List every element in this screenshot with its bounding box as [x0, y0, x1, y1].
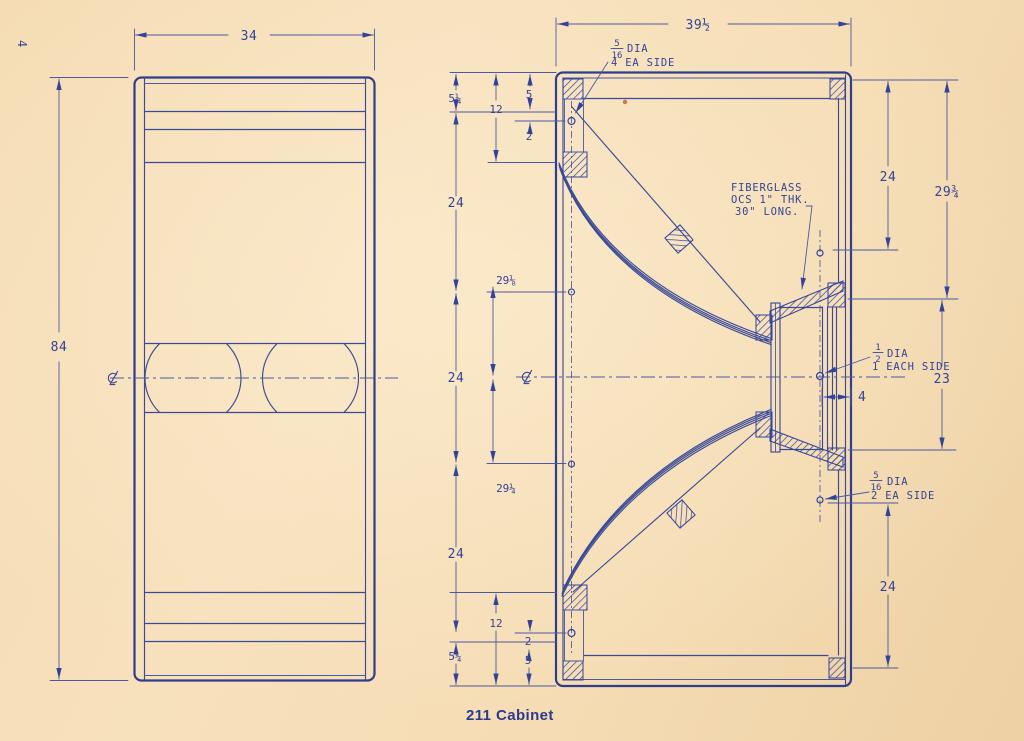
- dim-left-upper-29: 29⅛: [493, 274, 516, 375]
- svg-text:24: 24: [448, 547, 465, 562]
- note-rear-holes-low: 5 16 DIA 2 EA SIDE: [826, 471, 936, 502]
- svg-text:24: 24: [448, 371, 465, 386]
- dim-right-upper-29: 29¾: [935, 82, 960, 298]
- wood-blocks: [563, 79, 845, 680]
- left-extension-lines: [450, 73, 566, 687]
- svg-text:1 EACH SIDE: 1 EACH SIDE: [872, 361, 950, 373]
- svg-text:5¼: 5¼: [448, 92, 461, 105]
- note-rear-hole-mid: 1 2 DIA 1 EACH SIDE: [826, 343, 951, 373]
- front-width-label: 34: [241, 29, 258, 44]
- svg-text:2 EA SIDE: 2 EA SIDE: [871, 490, 935, 502]
- dim-left-two-top: 2: [526, 123, 533, 143]
- svg-text:24: 24: [880, 170, 897, 185]
- section-view: [516, 73, 908, 687]
- section-shell-lines: [563, 75, 846, 684]
- section-width-label: 39½: [686, 18, 711, 33]
- frac-numerator: 1: [875, 343, 880, 353]
- svg-text:2: 2: [526, 130, 533, 143]
- svg-text:2: 2: [525, 635, 532, 648]
- dim-left-upper-24: 24: [448, 114, 465, 291]
- svg-text:DIA: DIA: [627, 43, 648, 55]
- svg-text:OCS 1" THK.: OCS 1" THK.: [731, 194, 809, 206]
- svg-text:5: 5: [525, 654, 532, 667]
- svg-text:24: 24: [448, 196, 465, 211]
- horn-curve-bottom: [562, 409, 771, 596]
- blueprint-page: 34 84: [0, 0, 1024, 741]
- dim-left-two-bottom: 2: [525, 622, 532, 648]
- svg-text:29⅛: 29⅛: [496, 274, 516, 287]
- dim-left-twelve-top: 12: [489, 75, 502, 162]
- dim-front-height: 84: [50, 78, 128, 681]
- dim-left-center-24: 24: [448, 294, 465, 463]
- svg-text:5¼: 5¼: [448, 650, 461, 663]
- front-height-label: 84: [51, 340, 68, 355]
- front-panel-lines: [145, 78, 366, 680]
- dim-left-five-bottom: 5: [525, 650, 532, 685]
- svg-text:FIBERGLASS: FIBERGLASS: [731, 182, 802, 194]
- frac-numerator: 5: [614, 39, 619, 49]
- svg-text:30" LONG.: 30" LONG.: [735, 206, 799, 218]
- dim-left-five-top: 5: [526, 75, 533, 110]
- svg-text:29¼: 29¼: [496, 482, 516, 495]
- tie-rod-top: [572, 107, 760, 322]
- tie-rod-bottom: [573, 428, 760, 592]
- paper-speck: [623, 100, 627, 104]
- dim-right-upper-24: 24: [880, 82, 897, 249]
- horn-mouth-circles: [145, 330, 359, 426]
- svg-text:23: 23: [934, 372, 951, 387]
- note-fiberglass: FIBERGLASS OCS 1" THK. 30" LONG.: [731, 182, 812, 289]
- dim-front-width: 34: [135, 29, 375, 70]
- svg-text:12: 12: [489, 617, 502, 630]
- dim-left-lower-29: 29¼: [493, 380, 516, 495]
- dim-left-twelve-bottom: 12: [489, 594, 502, 685]
- page-number: 4: [15, 40, 29, 47]
- svg-text:5: 5: [526, 88, 533, 101]
- front-view: [108, 78, 398, 681]
- blueprint-drawing: 34 84: [0, 0, 1024, 741]
- dim-left-lower-24: 24: [448, 465, 465, 632]
- svg-text:4 EA SIDE: 4 EA SIDE: [611, 57, 675, 69]
- svg-text:4: 4: [858, 390, 866, 405]
- dim-section-width: 39½: [556, 18, 851, 66]
- svg-text:DIA: DIA: [887, 348, 908, 360]
- front-cabinet-outline: [135, 78, 375, 681]
- caption: 211 Cabinet: [466, 707, 554, 724]
- section-outline: [556, 73, 851, 687]
- dim-left-outer-bottom: 5¼: [448, 644, 461, 685]
- leader-rear-holes-low: [826, 492, 870, 499]
- dim-right-depth-4: 4: [822, 388, 866, 406]
- frac-numerator: 5: [873, 471, 878, 481]
- svg-text:29¾: 29¾: [935, 185, 960, 200]
- dim-right-lower-24: 24: [880, 505, 897, 667]
- throat-assembly: [770, 281, 843, 467]
- dim-left-outer-top: 5¼: [448, 75, 461, 111]
- svg-text:DIA: DIA: [887, 476, 908, 488]
- dim-right-center-23: 23: [934, 301, 951, 449]
- svg-text:24: 24: [880, 580, 897, 595]
- leader-fiberglass: [802, 206, 812, 289]
- svg-text:12: 12: [489, 103, 502, 116]
